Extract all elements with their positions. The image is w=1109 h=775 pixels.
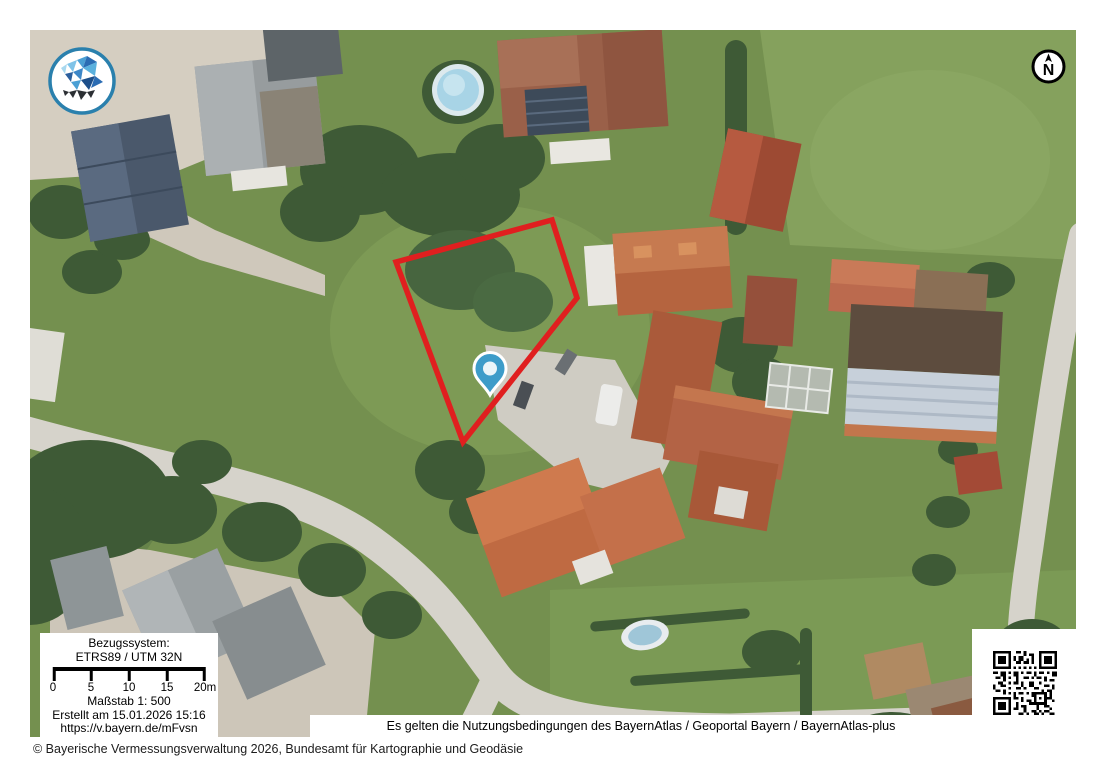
short-url: https://v.bayern.de/mFvsn [40, 722, 218, 736]
map-canvas: N Bezugssystem: ETRS89 / UTM 32N 0 5 10 … [30, 30, 1076, 737]
page: N Bezugssystem: ETRS89 / UTM 32N 0 5 10 … [0, 0, 1109, 775]
scale-bar [53, 667, 205, 682]
scale-tick-0: 0 [50, 682, 56, 696]
reference-system-value: ETRS89 / UTM 32N [40, 651, 218, 665]
copyright-line: © Bayerische Vermessungsverwaltung 2026,… [33, 742, 523, 756]
terms-of-use-strip: Es gelten die Nutzungsbedingungen des Ba… [310, 715, 972, 737]
reference-system-label: Bezugssystem: [40, 637, 218, 651]
scale-tick-15: 15 [161, 682, 174, 696]
north-label: N [1043, 62, 1055, 79]
north-arrow-icon: N [1030, 48, 1067, 85]
qr-code-box [972, 629, 1076, 737]
scale-tick-5: 5 [88, 682, 94, 696]
scale-tick-20: 20m [194, 682, 216, 696]
created-timestamp: Erstellt am 15.01.2026 15:16 [40, 709, 218, 723]
map-info-box: Bezugssystem: ETRS89 / UTM 32N 0 5 10 15… [40, 633, 218, 737]
scale-tick-labels: 0 5 10 15 20m [53, 682, 205, 695]
scale-tick-10: 10 [123, 682, 136, 696]
aerial-imagery [30, 30, 1076, 737]
qr-code [993, 651, 1057, 715]
scale-ratio: Maßstab 1: 500 [40, 695, 218, 709]
bayernatlas-logo-icon [47, 46, 117, 116]
terms-text: Es gelten die Nutzungsbedingungen des Ba… [387, 719, 896, 733]
